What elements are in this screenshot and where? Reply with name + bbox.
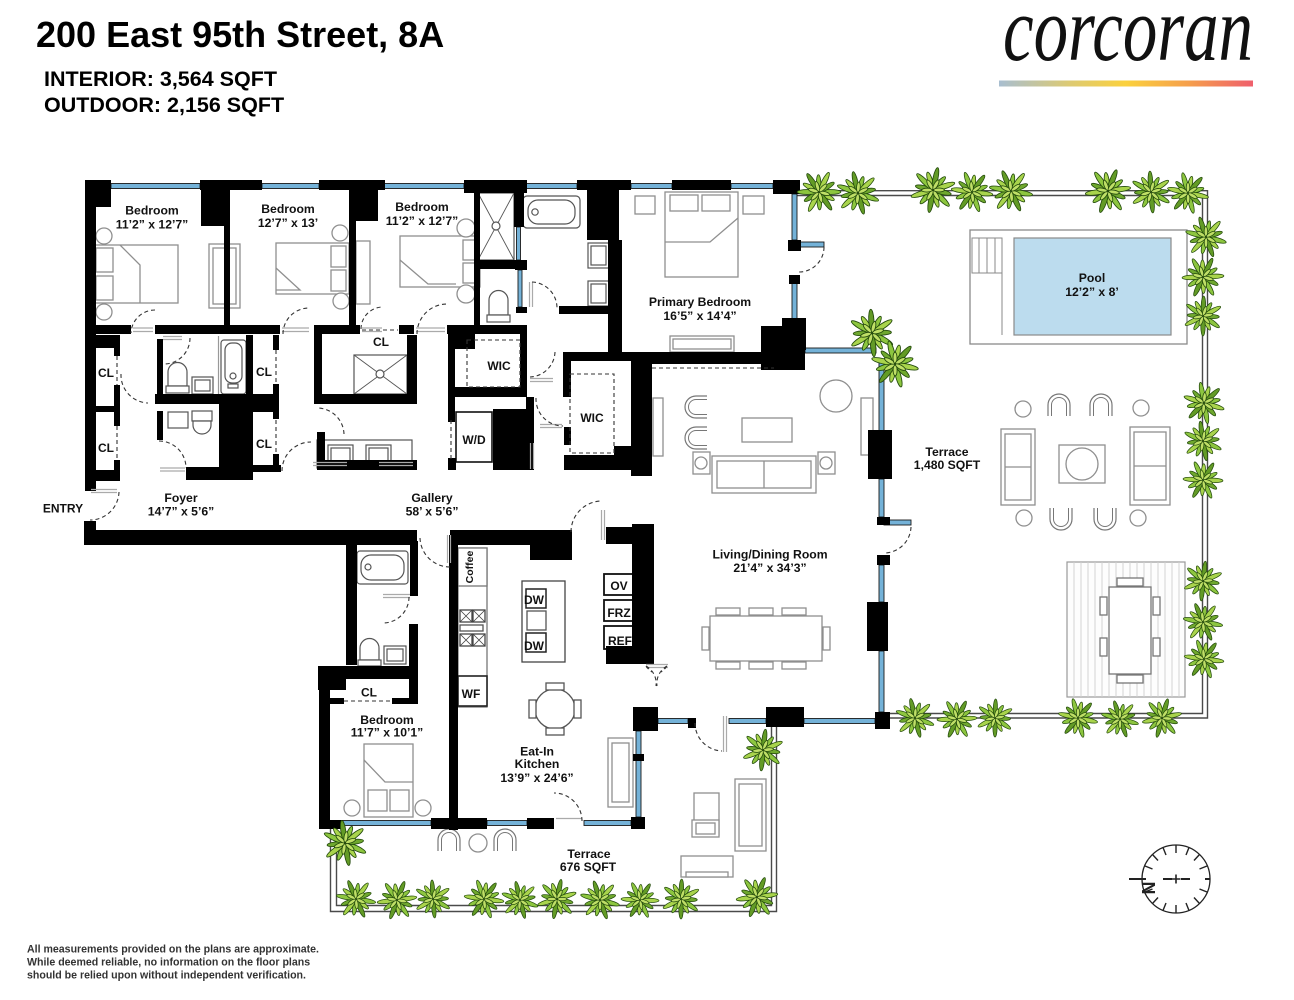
svg-text:11’2” x 12’7”: 11’2” x 12’7” xyxy=(386,214,459,228)
svg-text:OUTDOOR: 2,156 SQFT: OUTDOOR: 2,156 SQFT xyxy=(44,93,284,117)
svg-text:All measurements provided on t: All measurements provided on the plans a… xyxy=(27,944,319,956)
svg-text:Pool: Pool xyxy=(1079,271,1105,285)
svg-text:DW: DW xyxy=(524,639,545,653)
svg-text:WF: WF xyxy=(462,687,481,701)
svg-text:CL: CL xyxy=(98,366,114,380)
svg-text:WIC: WIC xyxy=(580,411,604,425)
svg-text:corcoran: corcoran xyxy=(1003,0,1253,80)
svg-text:CL: CL xyxy=(256,437,272,451)
svg-text:14’7” x 5’6”: 14’7” x 5’6” xyxy=(148,505,214,519)
svg-text:ENTRY: ENTRY xyxy=(43,502,83,516)
svg-text:12’2” x 8’: 12’2” x 8’ xyxy=(1065,285,1119,299)
svg-text:11’2” x 12’7”: 11’2” x 12’7” xyxy=(116,218,189,232)
svg-text:11’7” x 10’1”: 11’7” x 10’1” xyxy=(351,726,424,740)
svg-text:Terrace: Terrace xyxy=(567,847,610,861)
svg-text:Coffee: Coffee xyxy=(464,551,476,584)
svg-text:16’5” x 14’4”: 16’5” x 14’4” xyxy=(663,309,736,323)
svg-text:should be relied upon without: should be relied upon without independen… xyxy=(27,970,306,982)
svg-text:While deemed reliable, no info: While deemed reliable, no information on… xyxy=(27,957,310,969)
svg-text:Living/Dining Room: Living/Dining Room xyxy=(712,548,827,562)
svg-text:Bedroom: Bedroom xyxy=(261,202,315,216)
svg-text:CL: CL xyxy=(98,441,114,455)
svg-text:N: N xyxy=(1139,882,1159,895)
svg-text:58’ x 5’6”: 58’ x 5’6” xyxy=(406,505,459,519)
svg-text:676 SQFT: 676 SQFT xyxy=(560,860,617,874)
svg-text:Primary Bedroom: Primary Bedroom xyxy=(649,295,751,309)
svg-text:Gallery: Gallery xyxy=(411,491,453,505)
svg-text:Kitchen: Kitchen xyxy=(515,757,560,771)
svg-text:Bedroom: Bedroom xyxy=(395,200,449,214)
svg-text:DW: DW xyxy=(524,593,545,607)
svg-text:Bedroom: Bedroom xyxy=(125,204,179,218)
svg-text:21’4” x 34’3”: 21’4” x 34’3” xyxy=(733,561,806,575)
svg-text:200 East 95th Street, 8A: 200 East 95th Street, 8A xyxy=(36,14,444,55)
svg-text:INTERIOR: 3,564 SQFT: INTERIOR: 3,564 SQFT xyxy=(44,67,277,91)
svg-text:CL: CL xyxy=(361,686,377,700)
svg-text:CL: CL xyxy=(256,365,272,379)
svg-text:WIC: WIC xyxy=(487,359,511,373)
svg-text:FRZ: FRZ xyxy=(607,606,630,620)
svg-text:Foyer: Foyer xyxy=(164,491,197,505)
svg-text:12’7” x 13’: 12’7” x 13’ xyxy=(258,216,318,230)
svg-text:CL: CL xyxy=(373,335,389,349)
svg-text:W/D: W/D xyxy=(462,433,486,447)
svg-text:1,480 SQFT: 1,480 SQFT xyxy=(914,458,981,472)
svg-text:13’9” x 24’6”: 13’9” x 24’6” xyxy=(500,771,573,785)
svg-text:REF: REF xyxy=(608,634,632,648)
svg-text:Terrace: Terrace xyxy=(925,445,968,459)
svg-text:OV: OV xyxy=(610,579,627,593)
